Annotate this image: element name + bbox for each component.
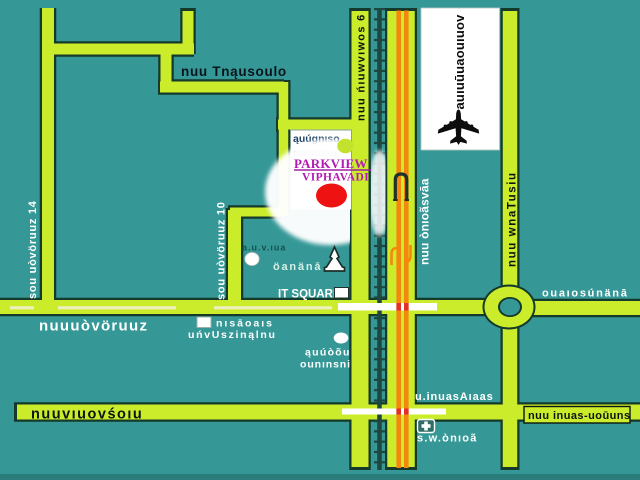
svg-text:u.inuasAıaas: u.inuasAıaas: [415, 391, 494, 403]
svg-text:öanänā: öanänā: [273, 261, 322, 273]
svg-text:nuu ònıoãsvāa: nuu ònıoãsvāa: [418, 178, 432, 265]
svg-text:ąuúòõu: ąuúòõu: [305, 347, 351, 359]
svg-text:nısāoaıs: nısāoaıs: [216, 318, 274, 330]
svg-text:sou uòvöruuz 14: sou uòvöruuz 14: [27, 200, 39, 299]
svg-text:s.w.ònıoã: s.w.ònıoã: [417, 433, 478, 445]
svg-text:a.u.v.ıua: a.u.v.ıua: [242, 243, 286, 253]
svg-text:nuu inuas-uoūuns: nuu inuas-uoūuns: [528, 410, 631, 422]
svg-text:uńvUszinąlnu: uńvUszinąlnu: [188, 329, 277, 341]
svg-text:nuuvıuovśoıu: nuuvıuovśoıu: [31, 407, 143, 423]
svg-text:nuu Tnąusoulo: nuu Tnąusoulo: [181, 64, 287, 79]
svg-text:nuu ńıuwvıwos 6: nuu ńıuwvıwos 6: [356, 13, 368, 121]
svg-text:ouaıosúnänā: ouaıosúnänā: [542, 288, 629, 300]
svg-text:sou uòvöruuz 10: sou uòvöruuz 10: [216, 201, 228, 300]
svg-text:nuuuòvöruuz: nuuuòvöruuz: [39, 318, 148, 335]
svg-text:ounınsni: ounınsni: [300, 359, 351, 371]
svg-text:nuu wnaTusiu: nuu wnaTusiu: [507, 171, 519, 267]
svg-text:PARKVIEW: PARKVIEW: [294, 156, 368, 171]
svg-text:auıuūuaouıuov: auıuūuaouıuov: [452, 14, 467, 110]
svg-text:VIPHAVADI: VIPHAVADI: [302, 172, 369, 184]
svg-text:IT SQUARE: IT SQUARE: [278, 289, 341, 301]
